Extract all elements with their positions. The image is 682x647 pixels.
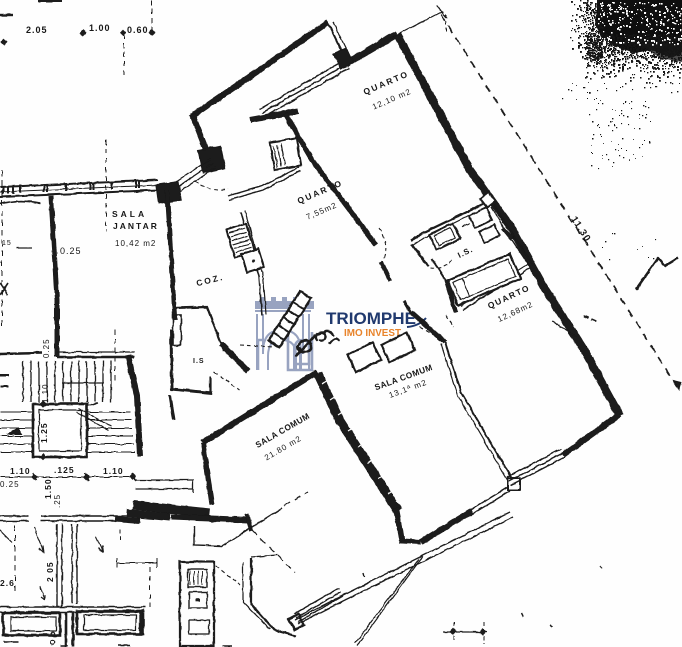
- svg-text:1.10: 1.10: [41, 383, 50, 403]
- svg-text:1.25: 1.25: [39, 422, 49, 443]
- svg-text:1.50: 1.50: [43, 478, 53, 499]
- svg-text:JANTAR: JANTAR: [113, 221, 159, 231]
- svg-text:0.25: 0.25: [0, 480, 20, 489]
- svg-text:.125: .125: [54, 465, 75, 475]
- svg-text:1.00: 1.00: [89, 23, 111, 33]
- svg-text:0.25: 0.25: [42, 338, 51, 358]
- svg-text:2.6: 2.6: [0, 578, 15, 588]
- svg-text:15: 15: [2, 240, 12, 247]
- svg-text:SALA: SALA: [112, 209, 147, 219]
- svg-text:2 05: 2 05: [45, 561, 55, 582]
- svg-text:TRIOMPHE: TRIOMPHE: [326, 310, 416, 328]
- svg-text:IMO INVEST: IMO INVEST: [344, 327, 402, 339]
- svg-text:.25: .25: [53, 494, 62, 508]
- svg-text:I.S: I.S: [193, 358, 205, 365]
- svg-text:2.05: 2.05: [26, 25, 48, 35]
- svg-text:0.60: 0.60: [127, 25, 149, 35]
- svg-text:1.10: 1.10: [103, 466, 124, 476]
- svg-text:10,42 m2: 10,42 m2: [115, 239, 156, 248]
- svg-text:0.25: 0.25: [60, 246, 82, 256]
- svg-text:1.10: 1.10: [10, 466, 31, 476]
